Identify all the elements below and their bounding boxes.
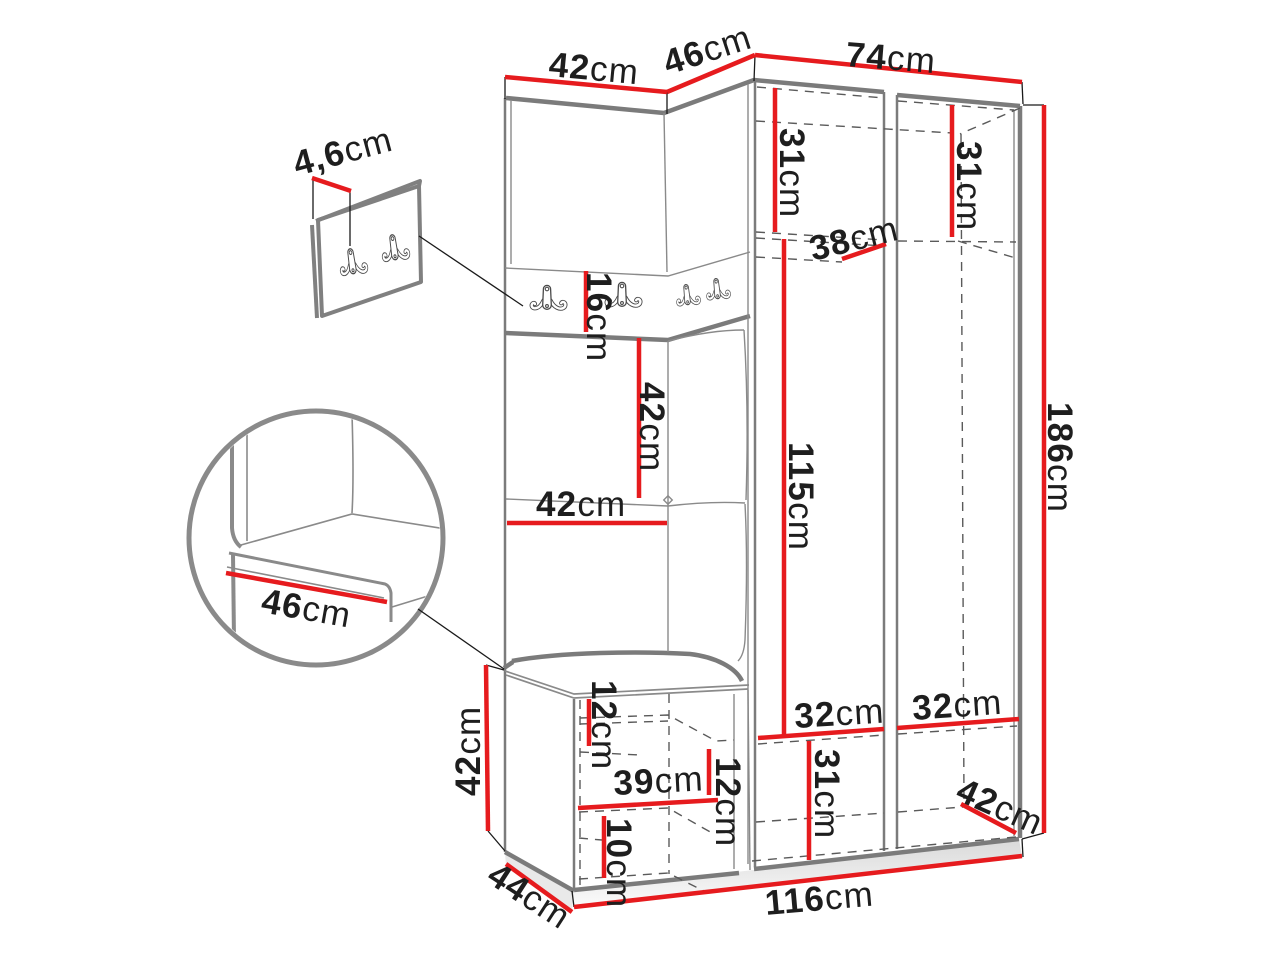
svg-text:32cm: 32cm bbox=[793, 692, 886, 736]
svg-text:186cm: 186cm bbox=[1040, 402, 1079, 513]
svg-text:31cm: 31cm bbox=[807, 749, 846, 839]
svg-text:42cm: 42cm bbox=[632, 382, 671, 472]
svg-text:42cm: 42cm bbox=[536, 485, 626, 524]
svg-text:32cm: 32cm bbox=[911, 683, 1004, 728]
svg-text:42cm: 42cm bbox=[449, 706, 488, 796]
svg-text:74cm: 74cm bbox=[844, 35, 937, 81]
svg-text:31cm: 31cm bbox=[949, 141, 988, 231]
svg-text:10cm: 10cm bbox=[599, 818, 638, 908]
svg-text:12cm: 12cm bbox=[584, 680, 623, 770]
svg-text:42cm: 42cm bbox=[547, 45, 641, 92]
svg-text:115cm: 115cm bbox=[781, 442, 820, 551]
svg-text:39cm: 39cm bbox=[612, 759, 704, 803]
svg-text:12cm: 12cm bbox=[708, 757, 747, 847]
svg-text:16cm: 16cm bbox=[579, 272, 618, 362]
svg-text:31cm: 31cm bbox=[772, 128, 811, 218]
